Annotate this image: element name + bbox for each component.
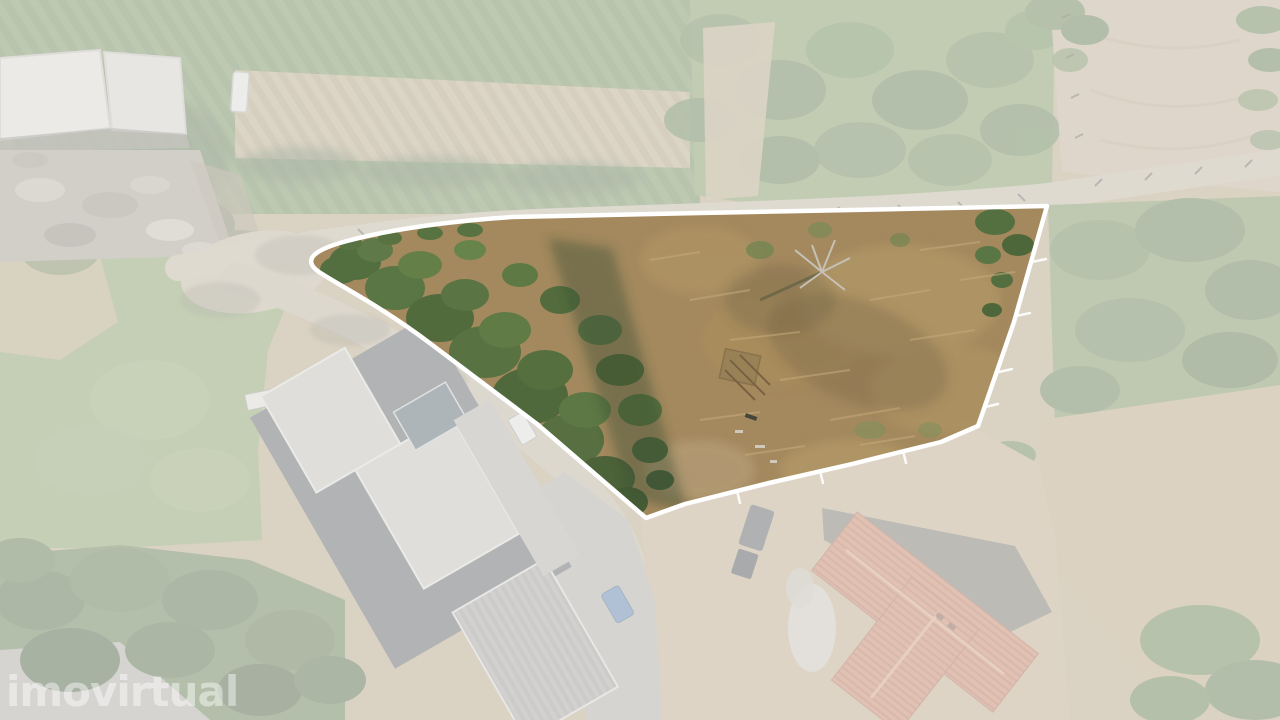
- aerial-photo-canvas: [0, 0, 1280, 720]
- watermark: imovirtual: [6, 671, 238, 713]
- aerial-photo: imovirtual: [0, 0, 1280, 720]
